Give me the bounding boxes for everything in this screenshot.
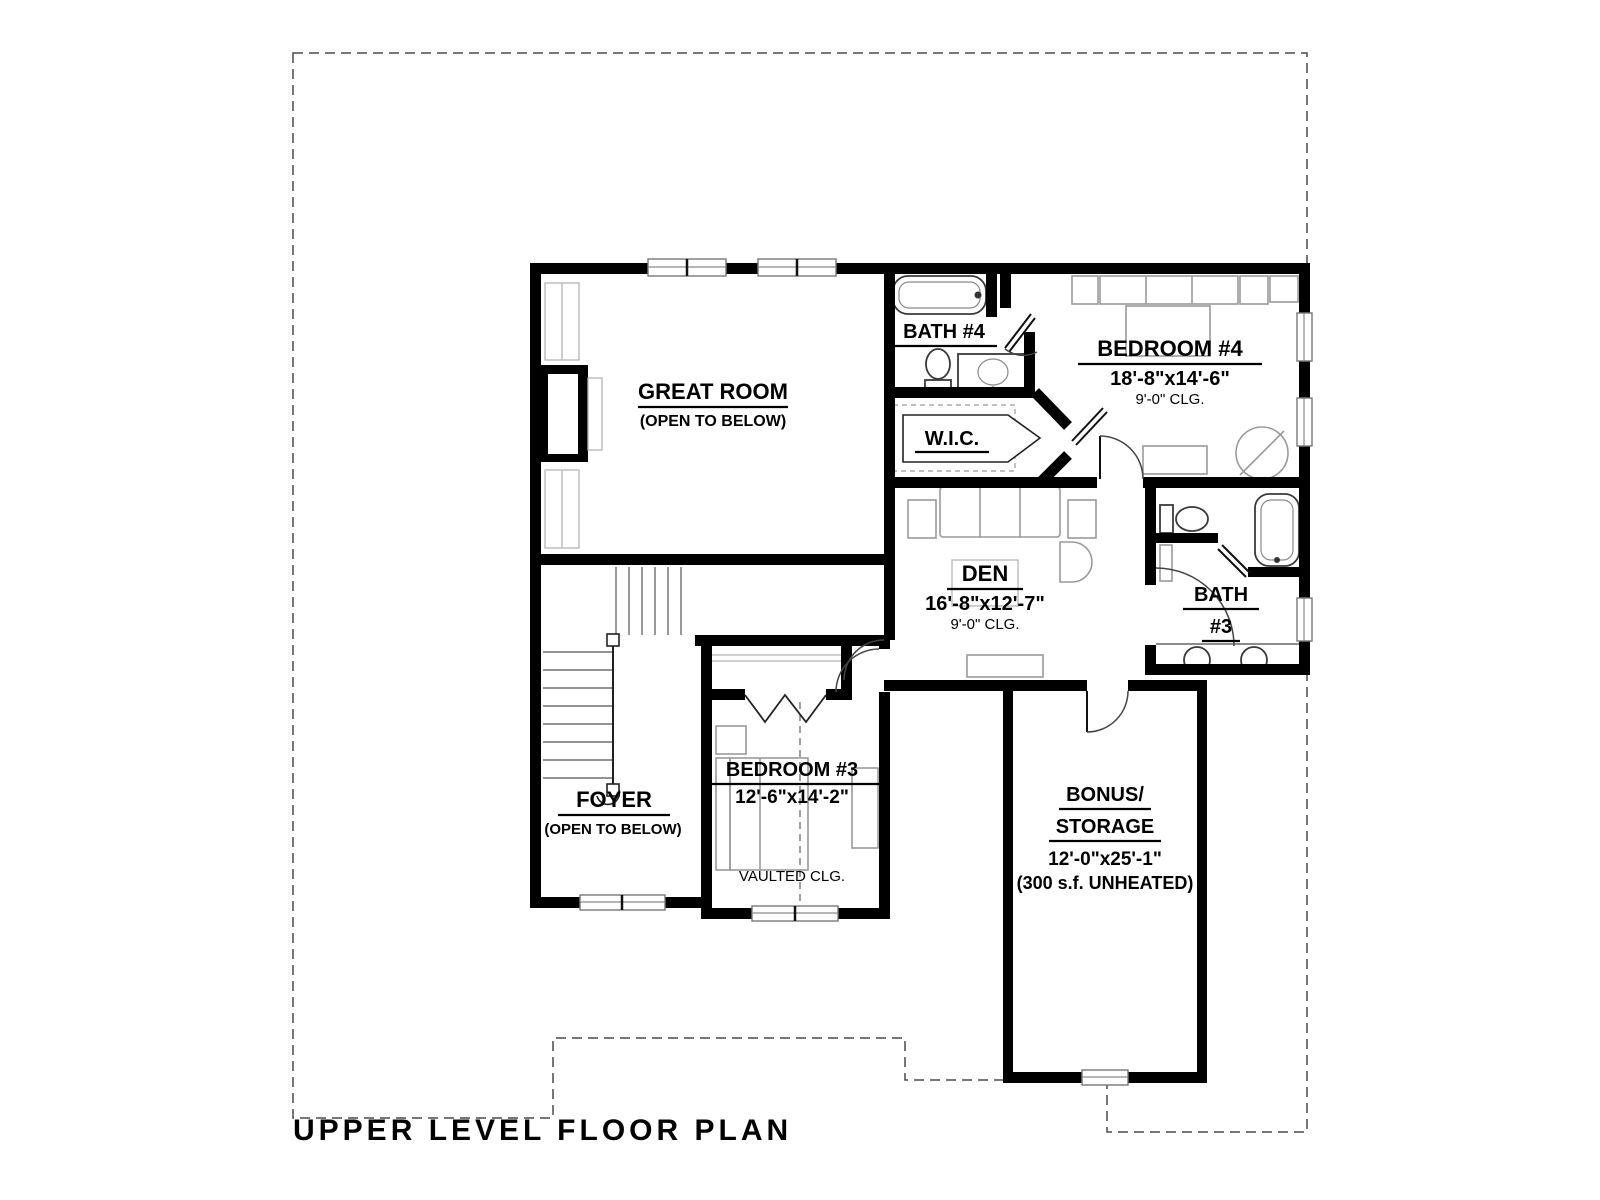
great-room-note: (OPEN TO BELOW): [640, 413, 786, 430]
wic-angled-wall-top: [1035, 392, 1068, 426]
bonus-dims: 12'-0"x25'-1": [1048, 849, 1162, 870]
bedroom4-window-lower: [1297, 398, 1312, 446]
foyer-window: [580, 895, 665, 910]
bedroom4-door: [1100, 436, 1143, 479]
wic-door: [1072, 408, 1107, 445]
great-room-label: GREAT ROOM: [638, 379, 788, 404]
den-ceiling: 9'-0" CLG.: [950, 616, 1019, 633]
nightstand3: [716, 726, 746, 754]
fireplace: [530, 365, 602, 462]
bedroom3-ceiling: VAULTED CLG.: [739, 868, 845, 885]
bonus-door: [1087, 691, 1128, 732]
bed-headboard: [1100, 276, 1238, 304]
bath3-window: [1297, 598, 1312, 641]
railing-newel-top: [607, 634, 619, 646]
linen-niche: [1160, 545, 1172, 581]
den-label: DEN: [962, 561, 1008, 586]
bonus-window: [1082, 1070, 1128, 1085]
labels: GREAT ROOM (OPEN TO BELOW) BATH #4 BEDRO…: [293, 321, 1262, 1147]
toilet4-bowl: [926, 349, 950, 379]
staircase: [543, 567, 681, 804]
console-table: [967, 655, 1043, 677]
floor-plan-page: GREAT ROOM (OPEN TO BELOW) BATH #4 BEDRO…: [0, 0, 1600, 1200]
bath4-label: BATH #4: [903, 321, 986, 343]
armchair-right: [1068, 500, 1096, 538]
toilet3-tank: [1160, 505, 1173, 533]
bedroom4-dims: 18'-8"x14'-6": [1110, 368, 1230, 390]
bedroom3-label: BEDROOM #3: [726, 759, 858, 781]
great-room-window-right: [758, 259, 836, 276]
page-title: UPPER LEVEL FLOOR PLAN: [293, 1114, 792, 1147]
armchair-left: [908, 500, 936, 538]
tub3-faucet: [1274, 557, 1280, 563]
toilet3-bowl: [1176, 507, 1208, 531]
bonus-note: (300 s.f. UNHEATED): [1017, 873, 1194, 893]
bedroom3-closet-bifold-doors: [745, 695, 826, 722]
bedroom4-window-upper: [1297, 313, 1312, 361]
bonus-label-line2: STORAGE: [1056, 816, 1155, 838]
nightstand-right: [1240, 276, 1268, 304]
bedroom4-ceiling: 9'-0" CLG.: [1135, 391, 1204, 408]
bath3-label-line2: #3: [1210, 616, 1232, 638]
bedroom4-label: BEDROOM #4: [1097, 336, 1243, 361]
bonus-label-line1: BONUS/: [1066, 784, 1144, 806]
roof-outline-path: [293, 53, 1307, 1132]
foyer-label: FOYER: [576, 787, 652, 812]
toilet-compartment-door: [1218, 545, 1250, 577]
den-dims: 16'-8"x12'-7": [925, 593, 1045, 615]
roof-outline: [293, 53, 1307, 1132]
floor-plan-drawing: GREAT ROOM (OPEN TO BELOW) BATH #4 BEDRO…: [0, 0, 1600, 1200]
tub4-faucet: [975, 292, 982, 299]
great-room-window-left: [648, 259, 726, 276]
corner-desk: [1060, 542, 1092, 582]
bedroom3-window: [752, 906, 838, 921]
nightstand-left: [1072, 276, 1098, 304]
foyer-note: (OPEN TO BELOW): [544, 821, 681, 838]
bedroom3-dims: 12'-6"x14'-2": [735, 787, 849, 808]
sofa: [940, 487, 1060, 537]
bath3-label-line1: BATH: [1194, 584, 1248, 606]
dresser: [1143, 446, 1207, 474]
wic-label: W.I.C.: [925, 428, 979, 450]
corner-table: [1270, 276, 1298, 302]
